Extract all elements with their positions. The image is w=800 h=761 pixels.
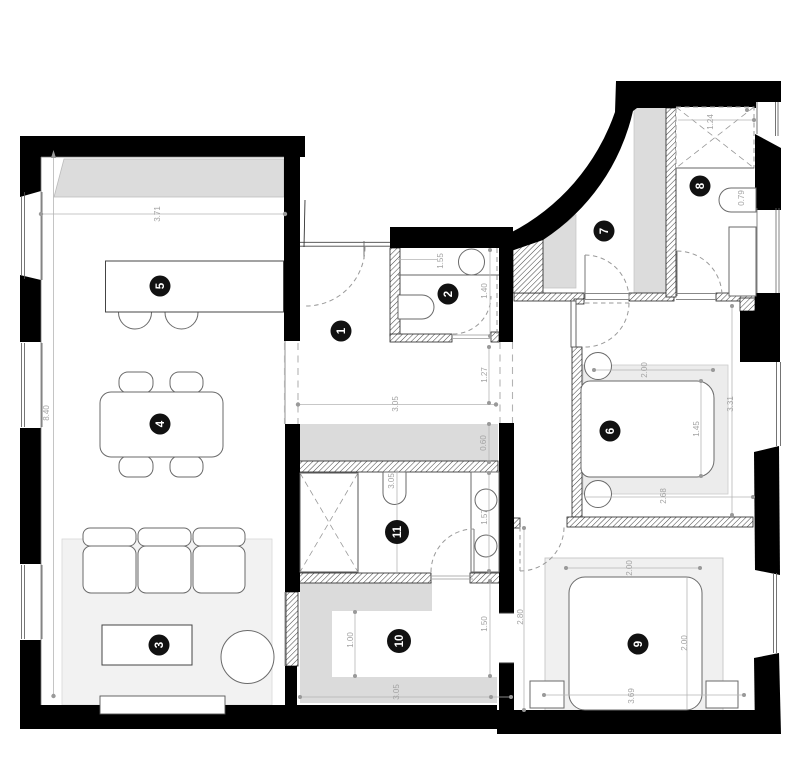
svg-text:11: 11 <box>392 525 404 538</box>
svg-text:2.68: 2.68 <box>659 488 668 504</box>
svg-text:5: 5 <box>155 282 167 289</box>
svg-text:6: 6 <box>605 428 617 434</box>
svg-text:0.79: 0.79 <box>737 190 746 206</box>
svg-text:1.00: 1.00 <box>346 632 355 648</box>
svg-text:3.31: 3.31 <box>726 396 735 412</box>
svg-text:0.60: 0.60 <box>479 435 488 451</box>
svg-text:7: 7 <box>599 228 611 234</box>
svg-text:3.05: 3.05 <box>391 396 400 412</box>
svg-text:9: 9 <box>633 641 645 647</box>
svg-text:2.00: 2.00 <box>680 635 689 651</box>
svg-text:1.45: 1.45 <box>692 421 701 437</box>
svg-text:3: 3 <box>154 642 166 648</box>
svg-text:2.00: 2.00 <box>625 560 634 576</box>
svg-text:8: 8 <box>695 182 707 189</box>
svg-text:2: 2 <box>443 291 455 297</box>
svg-text:1.50: 1.50 <box>480 616 489 632</box>
svg-text:4: 4 <box>155 420 167 427</box>
svg-text:3.05: 3.05 <box>392 684 401 700</box>
svg-text:1.27: 1.27 <box>480 367 489 383</box>
svg-text:1.24: 1.24 <box>706 114 715 130</box>
svg-text:1.40: 1.40 <box>480 283 489 299</box>
svg-text:2.00: 2.00 <box>640 362 649 378</box>
svg-text:8.40: 8.40 <box>42 405 51 421</box>
svg-text:1.55: 1.55 <box>436 253 445 269</box>
svg-text:3.05: 3.05 <box>387 473 396 489</box>
svg-text:10: 10 <box>394 635 406 648</box>
svg-text:3.69: 3.69 <box>627 688 636 704</box>
svg-text:1.57: 1.57 <box>480 509 489 525</box>
svg-text:1: 1 <box>336 327 348 334</box>
svg-text:3.71: 3.71 <box>153 206 162 222</box>
svg-text:2.80: 2.80 <box>516 609 525 625</box>
